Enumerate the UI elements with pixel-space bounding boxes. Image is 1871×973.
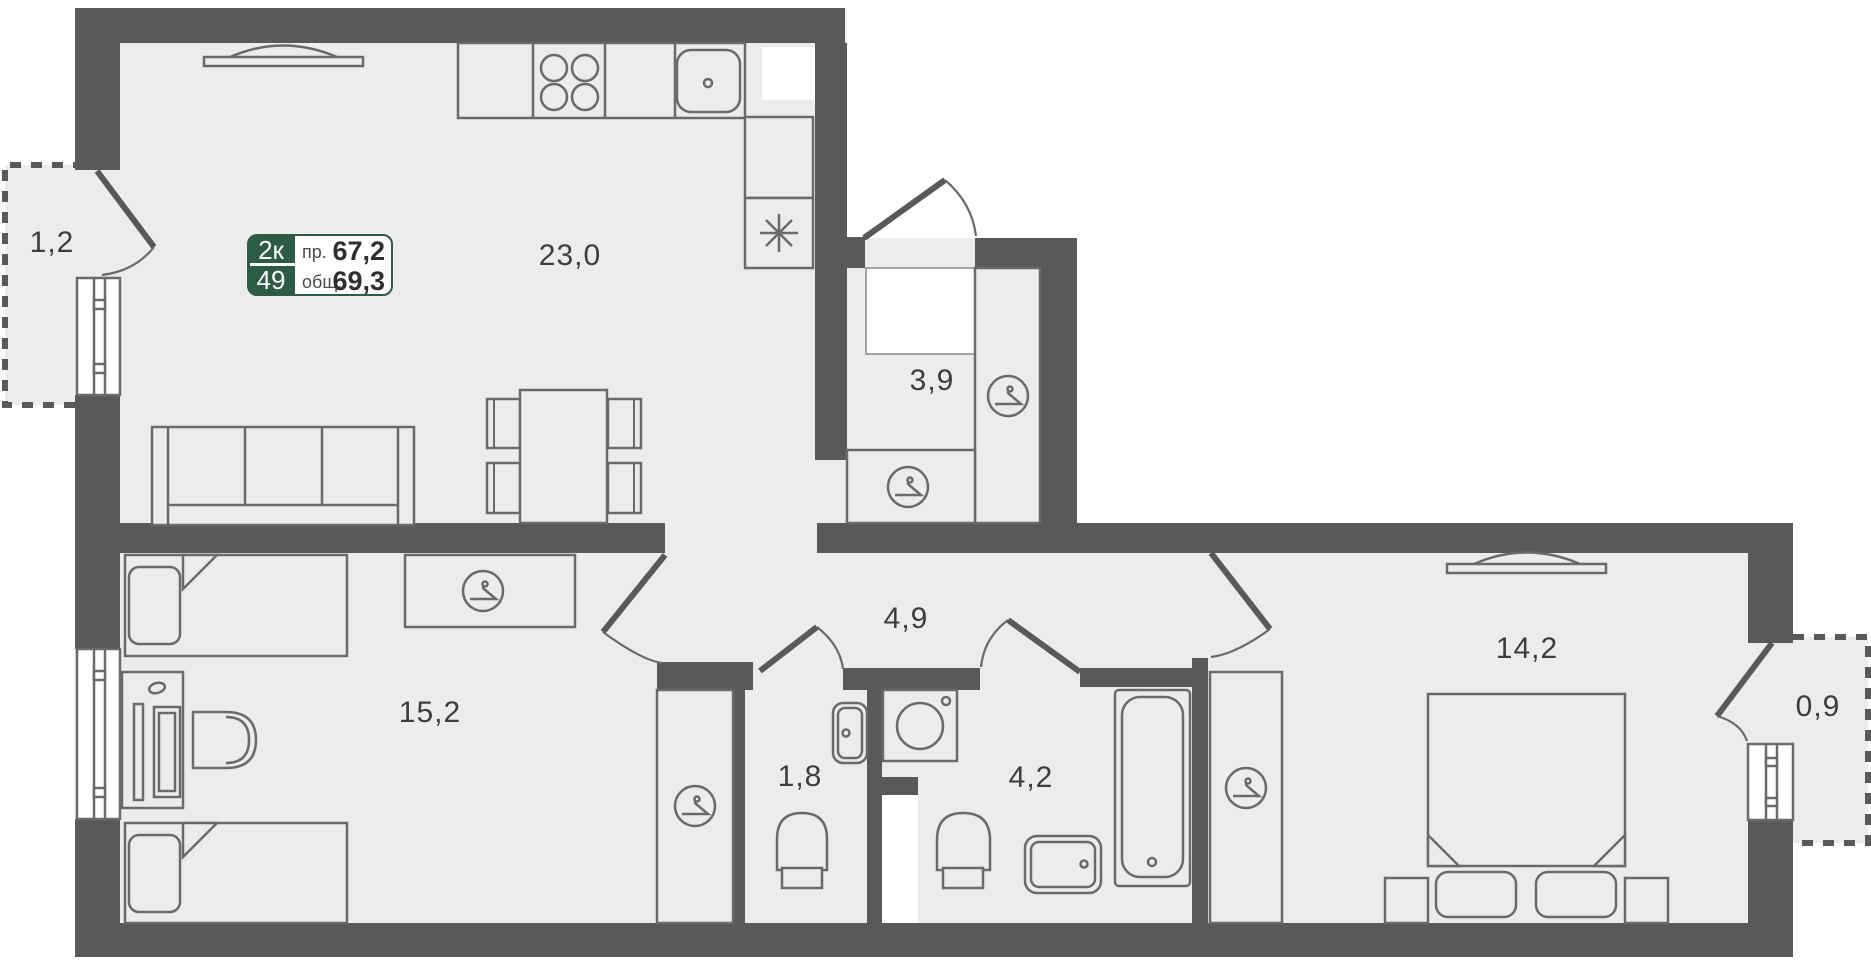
wall-bath-right [1192, 687, 1208, 923]
bath-sink-icon [1025, 836, 1101, 893]
desk-chair [193, 712, 256, 768]
wall-bedroom-top [817, 523, 1793, 553]
window-bedroom-left [77, 649, 120, 819]
badge-rooms: 2к [258, 235, 284, 265]
wall-bottom [75, 923, 1793, 957]
room-label-bathroom: 4,2 [1009, 761, 1054, 794]
wardrobe-room-left [405, 555, 575, 627]
bed-single-bottom [125, 823, 347, 923]
bath-toilet-icon [937, 813, 990, 888]
room-label-kitchen-living: 23,0 [539, 239, 601, 272]
entry-threshold [866, 268, 976, 354]
badge-living-value: 67,2 [332, 236, 385, 266]
wall-wc-bath-divider [867, 690, 882, 923]
wall-wc-top [843, 668, 980, 690]
wall-corridor-stub-left [657, 662, 753, 690]
sofa [152, 427, 414, 525]
room-label-balcony-right: 0,9 [1796, 690, 1841, 723]
balcony-left-zone [5, 165, 75, 405]
wall-shaft-stub [882, 777, 918, 795]
wall-bath-stub [1192, 658, 1208, 687]
nightstand-left [1385, 878, 1428, 923]
room-label-bedroom-left: 15,2 [399, 696, 461, 729]
room-label-bedroom-right: 14,2 [1496, 632, 1558, 665]
wall-kitchen-right [815, 43, 847, 460]
room-label-entry-hall: 3,9 [910, 364, 955, 397]
room-label-balcony-left: 1,2 [30, 226, 75, 259]
kitchen-sink-icon [677, 50, 740, 112]
badge-unit-number: 49 [257, 265, 286, 295]
wall-bath-top [1080, 668, 1192, 687]
room-label-corridor: 4,9 [884, 602, 929, 635]
hall-wardrobe-right [975, 268, 1040, 523]
washing-machine-icon [883, 690, 957, 761]
balcony-right-zone [1793, 637, 1868, 843]
wc-toilet-icon [777, 813, 827, 888]
wall-right-bottom [1748, 820, 1793, 957]
wall-hall-right [1040, 238, 1077, 553]
desk [122, 672, 183, 808]
unit-badge: 2к 49 пр. 67,2 общ. 69,3 [248, 235, 392, 296]
wall-entry-left-stub [845, 237, 865, 268]
badge-total-value: 69,3 [332, 266, 385, 296]
wall-left-mid [75, 395, 120, 649]
wall-wc-left [733, 690, 745, 923]
kitchen-shaft [762, 47, 815, 100]
wc-sink-icon [833, 703, 867, 763]
bed-single-top [125, 555, 347, 656]
nightstand-right [1625, 878, 1668, 923]
bedroom-wardrobe [1210, 672, 1282, 923]
floor-plan-page: 1,2 23,0 3,9 4,9 15,2 1,8 4,2 14,2 0,9 2… [0, 0, 1871, 973]
wall-left-top [75, 8, 120, 170]
room-label-wc: 1,8 [778, 760, 823, 793]
bathroom-shaft [882, 795, 918, 923]
wall-entry-right [975, 238, 1040, 268]
wall-living-room-divider [120, 523, 665, 553]
wall-top [76, 8, 845, 43]
window-living-left [77, 278, 120, 395]
floor-plan: 1,2 23,0 3,9 4,9 15,2 1,8 4,2 14,2 0,9 2… [0, 0, 1871, 973]
hall-wardrobe-bottom [847, 450, 975, 523]
corridor-wardrobe [657, 690, 733, 923]
bathtub-icon [1115, 690, 1190, 886]
badge-living-label: пр. [302, 242, 327, 262]
window-bedroom-right [1748, 744, 1793, 820]
wall-right-top [1748, 523, 1793, 643]
